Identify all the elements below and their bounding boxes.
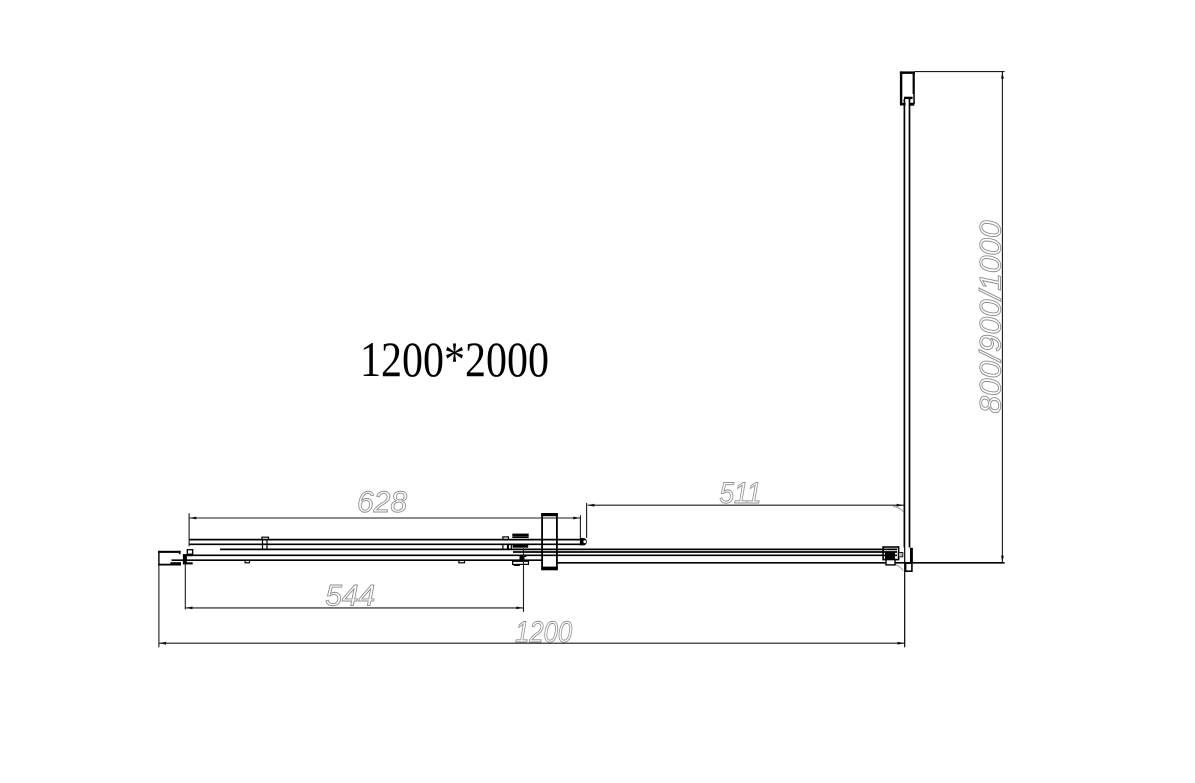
svg-text:800/900/1000: 800/900/1000 bbox=[974, 220, 1007, 413]
svg-text:628: 628 bbox=[357, 486, 407, 519]
svg-text:544: 544 bbox=[325, 580, 375, 613]
svg-text:1200: 1200 bbox=[515, 616, 572, 649]
svg-text:511: 511 bbox=[719, 477, 761, 510]
svg-text:1200*2000: 1200*2000 bbox=[360, 331, 549, 387]
